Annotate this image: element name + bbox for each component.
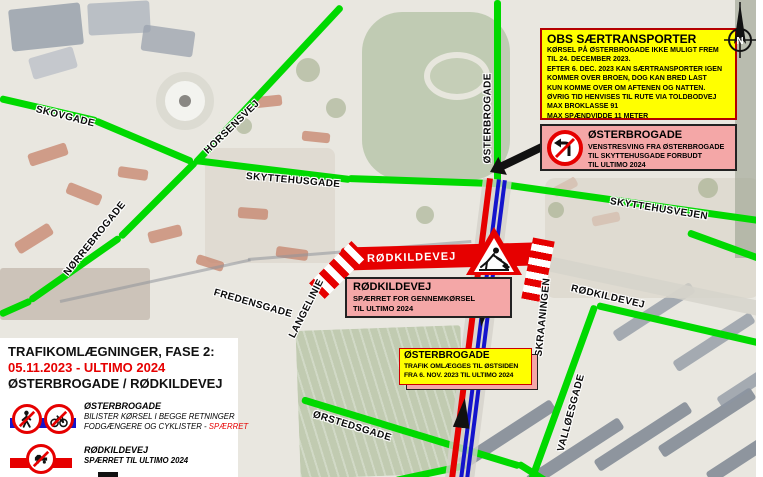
notice-line: KØRSEL PÅ ØSTERBROGADE IKKE MULIGT FREM (547, 46, 730, 55)
notice-line: SPÆRRET FOR GENNEMKØRSEL (353, 294, 504, 304)
stadium-oval (424, 52, 490, 100)
roadworks-digger-icon (477, 246, 511, 272)
tree (416, 206, 434, 224)
tree (698, 178, 718, 198)
notice-line: KUN KOMME OVER OM AFTENEN OG NATTEN. (547, 84, 730, 93)
aerial-patch (0, 268, 150, 320)
notice-line: TIL ULTIMO 2024 (588, 160, 724, 169)
special-transport-notice-box: OBS SÆRTRANSPORTER KØRSEL PÅ ØSTERBROGAD… (540, 28, 737, 120)
roof (14, 222, 55, 254)
legend-item-line: SPÆRRET TIL ULTIMO 2024 (84, 456, 236, 466)
legend-item-line-highlight: SPÆRRET (209, 422, 248, 431)
street-label-skovgade: SKOVGADE (35, 104, 96, 129)
legend-item-name: ØSTERBROGADE (84, 401, 236, 412)
roof (302, 131, 331, 144)
notice-title: ØSTERBROGADE (404, 350, 527, 362)
notice-line: ØVRIG TID HENVISES TIL RUTE VIA TOLDBODV… (547, 93, 730, 102)
roof (147, 224, 183, 244)
notice-line: TRAFIK OMLÆGGES TIL ØSTSIDEN (404, 362, 527, 371)
notice-line: MAX BROKLASSE 91 (547, 102, 730, 111)
no-left-turn-icon (547, 130, 583, 166)
notice-line: KOMMER OVER BROEN, DOG KAN BRED LAST (547, 74, 730, 83)
tree (326, 98, 346, 118)
legend-item-line: FODGÆNGERE OG CYKLISTER - SPÆRRET (84, 422, 236, 432)
rodkildevej-closed-notice-box: RØDKILDEVEJ SPÆRRET FOR GENNEMKØRSEL TIL… (345, 277, 512, 318)
no-bicycles-icon (44, 404, 74, 434)
no-motor-vehicles-icon (26, 444, 56, 474)
legend-item-name: RØDKILDEVEJ (84, 445, 236, 456)
aerial-patch (140, 25, 195, 58)
notice-line: VENSTRESVING FRA ØSTERBROGADE (588, 142, 724, 151)
tree (296, 58, 320, 82)
notice-line: MAX SPÆNDVIDDE 11 METER (547, 112, 730, 121)
roadworks-warning-sign (466, 227, 522, 275)
gas-tank-center (179, 95, 191, 107)
north-compass: N (720, 2, 760, 58)
street-label-osterbrogade: ØSTERBROGADE (483, 73, 494, 163)
notice-line: TIL SKYTTEHUSGADE FORBUDT (588, 151, 724, 160)
legend-item-line-prefix: FODGÆNGERE OG CYKLISTER - (84, 422, 209, 431)
notice-line: FRA 6. NOV. 2023 TIL ULTIMO 2024 (404, 371, 527, 380)
plan-subtitle: ØSTERBROGADE / RØDKILDEVEJ (8, 376, 223, 391)
tree (548, 202, 564, 218)
notice-title: OBS SÆRTRANSPORTER (547, 32, 730, 46)
notice-line: TIL 24. DECEMBER 2023. (547, 55, 730, 64)
legend-panel: TRAFIKOMLÆGNINGER, FASE 2: 05.11.2023 - … (0, 338, 238, 477)
aerial-patch (28, 46, 78, 80)
plan-period: 05.11.2023 - ULTIMO 2024 (8, 360, 165, 375)
roof (238, 207, 269, 220)
street-label-rodkildevej-band: RØDKILDEVEJ (367, 250, 457, 264)
pointer-arrow (486, 140, 548, 180)
notice-line: EFTER 6. DEC. 2023 KAN SÆRTRANSPORTER IG… (547, 65, 730, 74)
notice-title: RØDKILDEVEJ (353, 280, 504, 294)
no-pedestrians-icon (12, 404, 42, 434)
roof (27, 142, 69, 167)
plan-title: TRAFIKOMLÆGNINGER, FASE 2: (8, 344, 215, 359)
page-margin (756, 0, 763, 477)
street-label-fredensgade: FREDENSGADE (212, 287, 293, 320)
notice-line: TIL ULTIMO 2024 (353, 304, 504, 314)
traffic-diverted-notice-box: ØSTERBROGADE TRAFIK OMLÆGGES TIL ØSTSIDE… (399, 348, 532, 385)
aerial-patch (8, 2, 84, 51)
map-canvas: RØDKILDEVEJ SKOVGADE HORSENSVEJ NØRREBRO (0, 0, 763, 477)
no-left-turn-notice-box: ØSTERBROGADE VENSTRESVING FRA ØSTERBROGA… (540, 124, 737, 171)
roof (65, 182, 103, 207)
notice-title: ØSTERBROGADE (588, 129, 724, 142)
legend-item-osterbrogade: ØSTERBROGADE BILISTER KØRSEL I BEGGE RET… (84, 401, 236, 432)
legend-item-partial (98, 472, 118, 477)
aerial-patch (87, 0, 151, 35)
roof (117, 166, 148, 181)
legend-item-line: BILISTER KØRSEL I BEGGE RETNINGER (84, 412, 236, 422)
compass-north-letter: N (736, 36, 743, 47)
legend-item-rodkildevej: RØDKILDEVEJ SPÆRRET TIL ULTIMO 2024 (84, 445, 236, 466)
